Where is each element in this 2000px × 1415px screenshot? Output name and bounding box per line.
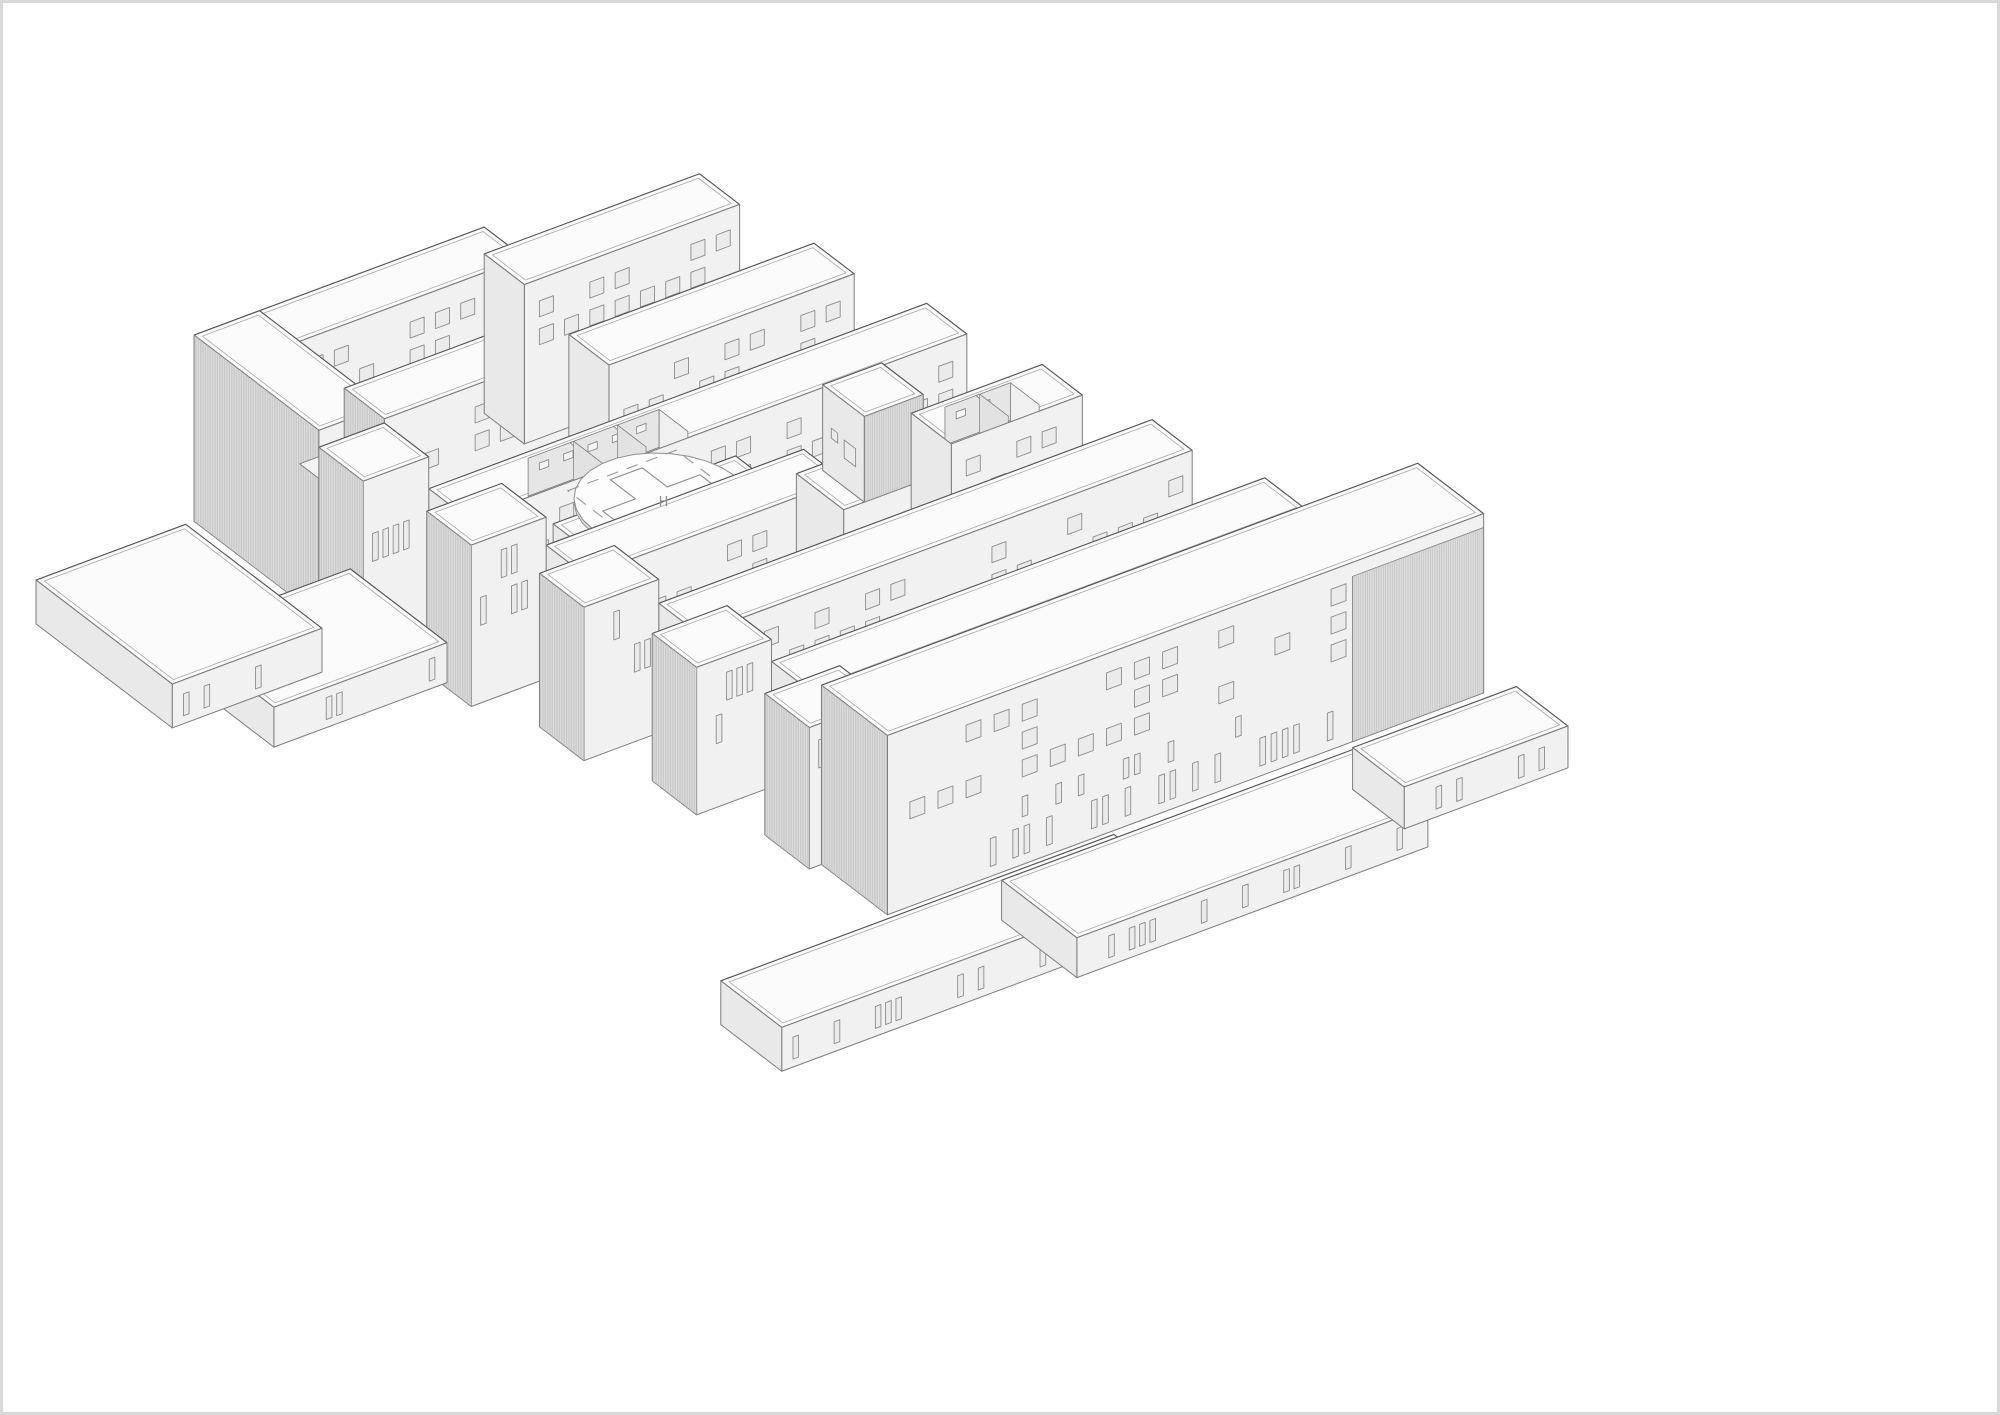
window xyxy=(1457,777,1463,801)
window xyxy=(403,520,409,550)
window xyxy=(747,662,753,692)
window xyxy=(1047,816,1053,846)
window xyxy=(1397,826,1403,850)
window xyxy=(501,548,507,578)
window xyxy=(716,714,722,744)
window xyxy=(511,584,517,614)
spine-block-4-facade xyxy=(697,640,772,815)
window xyxy=(1518,754,1524,778)
window xyxy=(1109,934,1115,958)
window xyxy=(1327,711,1333,741)
building-scene xyxy=(36,174,1568,1071)
window xyxy=(429,657,435,681)
window xyxy=(1193,761,1199,791)
window xyxy=(1271,732,1277,762)
window xyxy=(1170,770,1176,800)
window xyxy=(1236,715,1242,737)
window xyxy=(1215,753,1221,783)
window xyxy=(383,528,389,558)
window xyxy=(1294,865,1300,889)
spine-block-3-facade xyxy=(584,579,659,760)
window xyxy=(1024,824,1030,854)
helipad-label: H xyxy=(659,495,669,510)
window xyxy=(1135,753,1141,775)
window xyxy=(337,692,343,716)
window xyxy=(645,638,651,668)
window xyxy=(1201,899,1207,923)
window xyxy=(326,696,332,720)
window xyxy=(1294,724,1300,754)
window xyxy=(886,1001,892,1025)
window xyxy=(1159,774,1165,804)
window xyxy=(1243,884,1249,908)
window xyxy=(204,684,210,708)
window xyxy=(256,665,262,689)
window xyxy=(1125,786,1131,816)
window xyxy=(1103,795,1109,825)
window xyxy=(1150,919,1156,943)
window xyxy=(737,666,743,696)
window xyxy=(183,692,189,716)
window xyxy=(1140,922,1146,946)
window xyxy=(522,580,528,610)
back-long-bar-end-face xyxy=(484,254,524,444)
window xyxy=(634,642,640,672)
window xyxy=(1056,782,1062,804)
window xyxy=(1168,740,1174,762)
axonometric-hospital-drawing: H xyxy=(3,3,1997,1412)
window xyxy=(727,670,733,700)
window xyxy=(1022,795,1028,817)
window xyxy=(393,524,399,554)
drawing-canvas: H xyxy=(0,0,2000,1415)
window xyxy=(834,1020,840,1044)
window xyxy=(1282,728,1288,758)
window xyxy=(958,974,964,998)
window xyxy=(1091,799,1097,829)
window xyxy=(1539,747,1545,771)
window xyxy=(1123,757,1129,779)
window xyxy=(793,1035,799,1059)
window xyxy=(896,997,902,1021)
window xyxy=(875,1004,881,1028)
window xyxy=(511,544,517,574)
window xyxy=(978,966,984,990)
window xyxy=(373,531,379,561)
window xyxy=(1284,869,1290,893)
window xyxy=(481,595,487,625)
window xyxy=(1078,774,1084,796)
window xyxy=(1013,828,1019,858)
window xyxy=(1260,736,1266,766)
window xyxy=(1346,846,1352,870)
window xyxy=(990,837,996,867)
window xyxy=(1436,785,1442,809)
window xyxy=(1129,926,1135,950)
window xyxy=(614,610,620,640)
